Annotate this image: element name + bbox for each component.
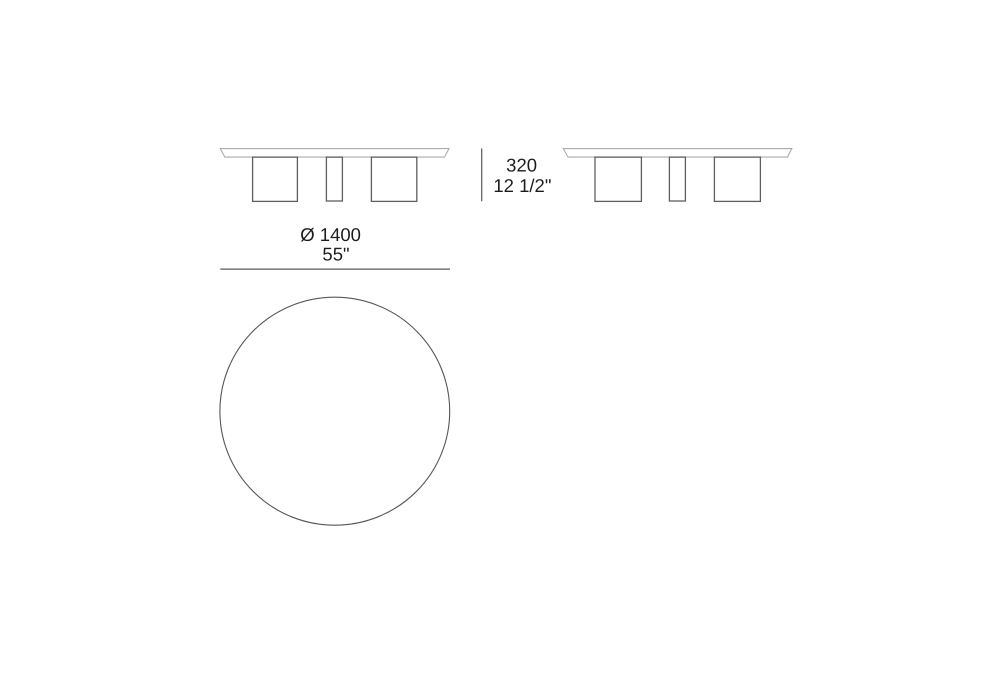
svg-text:Ø 1400: Ø 1400	[300, 224, 361, 245]
svg-text:320: 320	[506, 154, 537, 175]
svg-text:55": 55"	[322, 243, 349, 264]
svg-text:12 1/2": 12 1/2"	[493, 175, 551, 196]
